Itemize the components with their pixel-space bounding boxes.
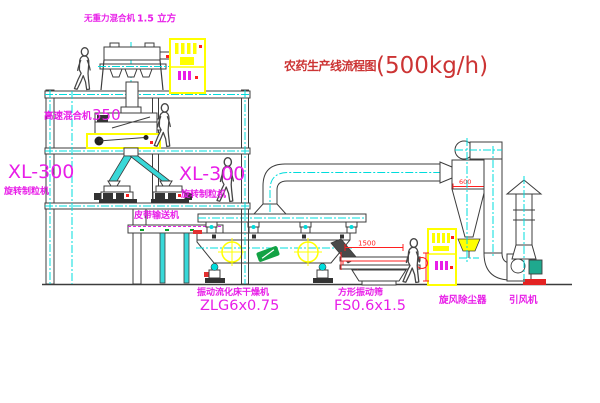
label-granulator-left-model: XL-300 (8, 161, 74, 183)
label-belt-conveyor: 皮带输送机 (133, 209, 179, 221)
screen-dimension: 1500 (358, 240, 376, 248)
indicator-dot (166, 55, 169, 58)
label-screen-model: FS0.6x1.5 (334, 298, 406, 314)
label-gravity-mixer-capacity: 1.5 立方 (137, 13, 177, 25)
fan-motor (529, 260, 542, 274)
dryer-feet (204, 264, 333, 284)
fan-and-stack (484, 146, 546, 285)
label-high-speed-mixer: 高速混合机 (44, 110, 92, 122)
diagram-title-capacity: (500kg/h) (376, 53, 488, 79)
cyclone-dimension: 600 (459, 178, 471, 186)
label-granulator-right: 旋转制粒机 (180, 188, 226, 200)
process-flow-diagram: 600 (0, 0, 600, 403)
dryer-mounts (206, 222, 357, 233)
label-screen: 方形振动筛 (338, 286, 383, 298)
diagram-title: 农药生产线流程图 (283, 58, 377, 73)
label-fan: 引风机 (509, 294, 538, 306)
discharge-chute (109, 156, 170, 181)
label-granulator-right-model: XL-300 (179, 163, 245, 185)
label-gravity-mixer: 无重力混合机 (83, 13, 136, 24)
label-dryer-model: ZLG6x0.75 (200, 298, 279, 314)
control-cabinet-top (170, 39, 205, 93)
label-granulator-left: 旋转制粒机 (3, 185, 49, 197)
control-cabinet-cyclone (428, 229, 456, 285)
granulator-left (94, 181, 137, 203)
person-figure (74, 48, 90, 90)
diagram-canvas: 600 (0, 0, 600, 403)
exhaust-duct (254, 162, 452, 214)
label-high-speed-mixer-model: 350 (92, 106, 121, 124)
label-dryer: 振动流化床干燥机 (197, 286, 269, 298)
label-cyclone: 旋风除尘器 (438, 294, 487, 306)
gravity-free-mixer (98, 42, 172, 113)
fan-base (523, 279, 546, 285)
